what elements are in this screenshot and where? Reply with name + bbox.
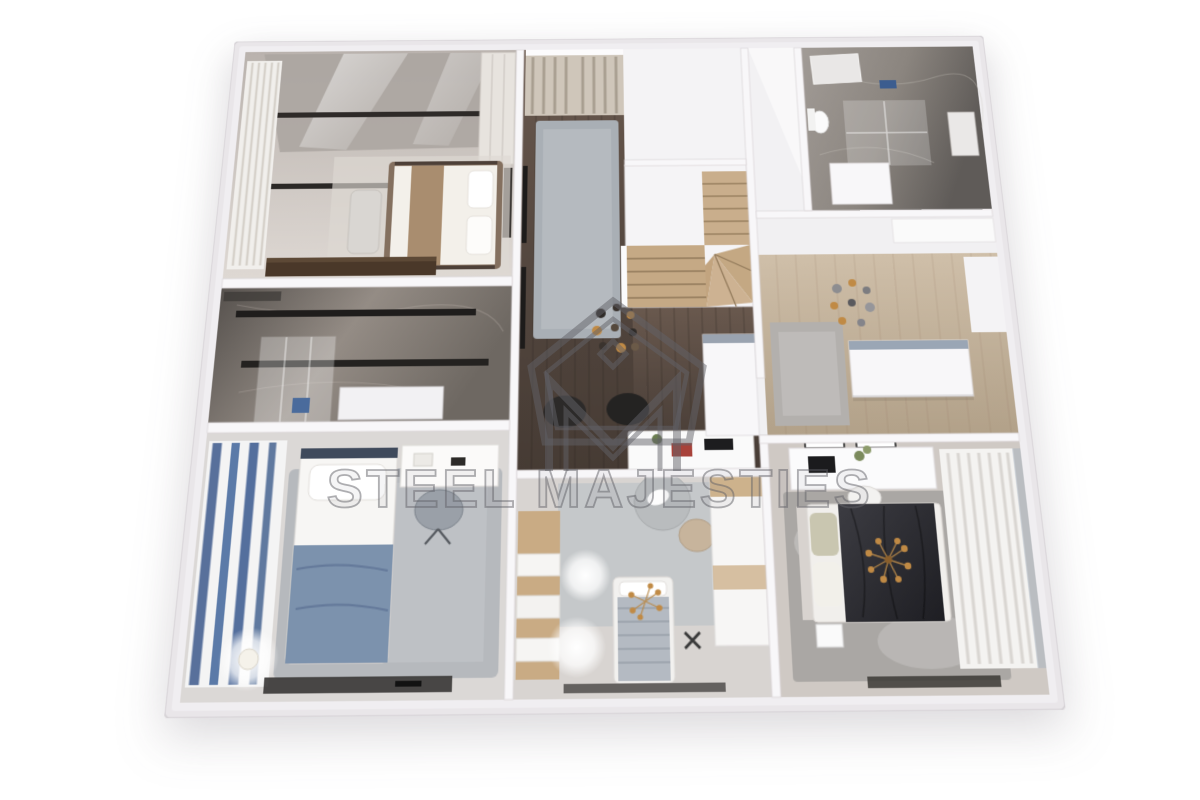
nursery-bed [613,577,675,684]
nursery-desk [709,469,769,646]
staircase [619,48,754,307]
kids-headboard [300,448,398,459]
kids-bed [285,448,398,664]
wall-bedroom2-top [759,433,1019,443]
bath-vanity [948,112,979,155]
dining-rug-light [778,332,841,416]
desk-item [451,457,466,465]
wall-return [703,334,760,436]
bed2 [796,503,951,622]
wall-stairwell-top [625,159,747,166]
closet-shelf [223,291,281,301]
nightstand [816,624,843,647]
bed-throw [407,166,444,265]
wall-nursery-top [517,468,770,479]
island-accent [849,340,969,350]
desk-sign [704,439,733,451]
bath-partition [830,163,893,204]
runner-rug-light [541,129,613,329]
room-nursery [513,469,772,699]
kids-console [263,676,452,694]
nursery-console [564,683,726,694]
dining-closets [892,218,996,242]
stair-landing-wall [623,48,746,165]
vanity-tray [808,456,836,473]
kids-pillow [308,464,387,500]
room-bathroom [801,46,995,210]
room-walk-in-closet [208,286,512,423]
wall-closet-kids [207,420,509,433]
floorplan-svg [164,36,1066,718]
toilet-tank [807,108,816,130]
desk-books [671,443,692,457]
console-item [395,681,422,687]
wall-bathroom-bottom [756,209,993,218]
room-kids-bedroom [180,430,509,702]
blue-towel [879,80,896,88]
island-shadow [853,394,974,401]
wall-master-closet [222,276,513,288]
pillow-1 [467,171,493,209]
bed2-pillow-1 [809,513,839,556]
pillow-2 [466,216,492,255]
bed2-pillow-2 [812,562,843,606]
render-canvas: STEEL MAJESTIES [0,0,1200,800]
room-master-bedroom [223,50,517,279]
floorplan-3d [164,36,1066,718]
hall-curtains [525,55,630,116]
blue-box [292,398,310,413]
closet-cabinet [338,387,443,420]
glass-shower [844,101,931,165]
pouf [679,519,716,552]
room-dining [757,216,1019,435]
desk-book [414,453,433,466]
master-bed [383,161,503,270]
room-bedroom-2 [768,434,1050,697]
wardrobe [478,52,515,164]
balustrade [621,246,628,308]
skylight [810,54,862,85]
bench [347,190,382,254]
wall-return-accent [703,334,755,343]
bed2-console [867,675,1001,688]
